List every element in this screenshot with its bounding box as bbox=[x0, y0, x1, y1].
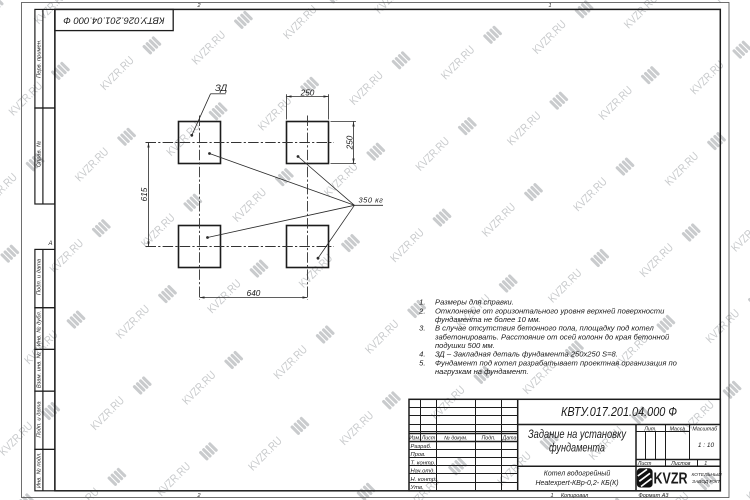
svg-text:KVZR.RU: KVZR.RU bbox=[638, 242, 676, 280]
svg-text:KVZR.RU: KVZR.RU bbox=[546, 267, 584, 305]
svg-text:KVZR.RU: KVZR.RU bbox=[531, 19, 569, 57]
svg-text:KVZR.RU: KVZR.RU bbox=[704, 308, 742, 346]
svg-text:KVZR.RU: KVZR.RU bbox=[73, 146, 111, 184]
svg-text:№ докум.: № докум. bbox=[444, 435, 467, 441]
svg-text:КОТЕЛЬНЫЙ: КОТЕЛЬНЫЙ bbox=[692, 470, 723, 478]
svg-text:Подп. и дата: Подп. и дата bbox=[36, 401, 42, 438]
svg-text:KVZR.RU: KVZR.RU bbox=[572, 176, 610, 214]
svg-text:615: 615 bbox=[140, 187, 149, 201]
svg-text:KVZR.RU: KVZR.RU bbox=[206, 278, 244, 316]
svg-text:KVZR.RU: KVZR.RU bbox=[124, 0, 162, 1]
svg-text:КВТУ.017.201.04.000 Ф: КВТУ.017.201.04.000 Ф bbox=[561, 405, 677, 419]
svg-text:Справ. №: Справ. № bbox=[36, 141, 42, 167]
svg-text:KVZR.RU: KVZR.RU bbox=[480, 201, 518, 239]
svg-text:1 : 10: 1 : 10 bbox=[698, 442, 715, 449]
svg-text:KVZR.RU: KVZR.RU bbox=[180, 369, 218, 407]
svg-text:Размеры для справки.: Размеры для справки. bbox=[435, 298, 514, 307]
svg-text:1: 1 bbox=[549, 3, 552, 9]
svg-text:1.: 1. bbox=[419, 298, 425, 307]
svg-text:KVZR.RU: KVZR.RU bbox=[348, 70, 386, 108]
svg-text:KVZR.RU: KVZR.RU bbox=[231, 186, 269, 224]
svg-text:KVZR.RU: KVZR.RU bbox=[363, 318, 401, 356]
svg-text:KVZR.RU: KVZR.RU bbox=[7, 80, 45, 118]
svg-text:KVZR.RU: KVZR.RU bbox=[322, 161, 360, 199]
svg-text:KVZR.RU: KVZR.RU bbox=[338, 410, 376, 448]
svg-text:KVZR.RU: KVZR.RU bbox=[139, 212, 177, 250]
svg-text:1: 1 bbox=[704, 461, 707, 467]
svg-text:Формат А3: Формат А3 bbox=[638, 493, 669, 499]
svg-text:Задание на установку: Задание на установку bbox=[528, 429, 627, 441]
svg-text:Инв. № подл.: Инв. № подл. bbox=[36, 452, 42, 488]
svg-text:KVZR.RU: KVZR.RU bbox=[48, 237, 86, 275]
svg-text:фундамента не более 10 мм.: фундамента не более 10 мм. bbox=[435, 315, 541, 324]
svg-text:Нач.отд.: Нач.отд. bbox=[411, 469, 435, 475]
svg-text:KVZR.RU: KVZR.RU bbox=[64, 486, 102, 500]
svg-text:Лист: Лист bbox=[637, 461, 652, 467]
svg-text:Н. контр.: Н. контр. bbox=[411, 477, 437, 483]
svg-text:Т. контр.: Т. контр. bbox=[411, 460, 436, 466]
svg-text:KVZR.RU: KVZR.RU bbox=[0, 420, 36, 458]
svg-text:Масштаб: Масштаб bbox=[692, 427, 718, 433]
svg-text:Heatexpert-КВр-0,2- КБ(К): Heatexpert-КВр-0,2- КБ(К) bbox=[535, 480, 618, 487]
svg-text:Изм.: Изм. bbox=[409, 435, 420, 441]
svg-text:Пров.: Пров. bbox=[411, 452, 426, 458]
svg-text:KVZR.RU: KVZR.RU bbox=[414, 135, 452, 173]
svg-text:KVZR.RU: KVZR.RU bbox=[190, 29, 228, 67]
svg-text:KVZR.RU: KVZR.RU bbox=[389, 227, 427, 265]
svg-text:250: 250 bbox=[300, 88, 315, 97]
svg-text:KVZR.RU: KVZR.RU bbox=[663, 150, 701, 188]
svg-text:KVZR.RU: KVZR.RU bbox=[272, 344, 310, 382]
svg-text:Дата: Дата bbox=[502, 435, 517, 441]
svg-text:В случае отсутствия бетонного: В случае отсутствия бетонного пола, площ… bbox=[435, 324, 655, 333]
svg-text:640: 640 bbox=[247, 289, 261, 298]
svg-text:KVZR.RU: KVZR.RU bbox=[165, 121, 203, 159]
svg-text:Листов: Листов bbox=[670, 461, 691, 467]
svg-text:ЗД – Закладная деталь фундамен: ЗД – Закладная деталь фундамента 250х250… bbox=[435, 350, 618, 359]
svg-text:Лит.: Лит. bbox=[643, 427, 656, 433]
svg-text:KVZR.RU: KVZR.RU bbox=[430, 384, 468, 422]
svg-text:Фундамент под котел разрабатыв: Фундамент под котел разрабатывает проект… bbox=[435, 358, 677, 367]
svg-text:KVZR: KVZR bbox=[654, 471, 688, 488]
svg-text:ЗД: ЗД bbox=[215, 83, 228, 94]
svg-text:KVZR.RU: KVZR.RU bbox=[114, 303, 152, 341]
svg-text:KVZR.RU: KVZR.RU bbox=[155, 461, 193, 499]
svg-text:Масса: Масса bbox=[670, 427, 686, 433]
svg-text:5.: 5. bbox=[419, 358, 425, 367]
svg-text:3.: 3. bbox=[419, 324, 425, 333]
svg-text:KVZR.RU: KVZR.RU bbox=[256, 95, 294, 133]
svg-text:Утв.: Утв. bbox=[410, 485, 424, 491]
svg-text:забетонировать. Расстояние от: забетонировать. Расстояние от осей колон… bbox=[434, 332, 670, 341]
svg-text:Подп.: Подп. bbox=[481, 435, 495, 441]
svg-text:Лист: Лист bbox=[421, 435, 436, 441]
svg-text:Перв. примен.: Перв. примен. bbox=[36, 39, 42, 78]
svg-text:Инв. № дубл.: Инв. № дубл. bbox=[36, 311, 42, 347]
svg-text:4.: 4. bbox=[419, 350, 425, 359]
svg-text:2: 2 bbox=[197, 3, 201, 9]
svg-text:А: А bbox=[48, 241, 53, 247]
svg-text:КВТУ.026.201.04.000 Ф: КВТУ.026.201.04.000 Ф bbox=[63, 14, 165, 25]
svg-text:KVZR.RU: KVZR.RU bbox=[89, 395, 127, 433]
svg-text:Копировал: Копировал bbox=[561, 493, 588, 499]
svg-text:2.: 2. bbox=[418, 306, 425, 315]
svg-text:KVZR.RU: KVZR.RU bbox=[0, 172, 20, 210]
svg-text:KVZR.RU: KVZR.RU bbox=[297, 252, 335, 290]
svg-text:фундамента: фундамента bbox=[549, 442, 605, 454]
svg-text:ЗАВОД РЭП: ЗАВОД РЭП bbox=[692, 479, 720, 485]
svg-text:KVZR.RU: KVZR.RU bbox=[247, 435, 285, 473]
svg-text:KVZR.RU: KVZR.RU bbox=[622, 0, 660, 31]
svg-text:1: 1 bbox=[550, 493, 553, 499]
svg-text:350 кг: 350 кг bbox=[359, 196, 384, 205]
svg-text:KVZR.RU: KVZR.RU bbox=[745, 465, 750, 500]
svg-text:KVZR.RU: KVZR.RU bbox=[505, 110, 543, 148]
svg-text:Котел водогрейный: Котел водогрейный bbox=[544, 470, 611, 478]
svg-text:KVZR.RU: KVZR.RU bbox=[439, 44, 477, 82]
svg-text:KVZR.RU: KVZR.RU bbox=[729, 216, 750, 254]
svg-text:250: 250 bbox=[345, 135, 354, 150]
svg-text:нагрузкам на фундамент.: нагрузкам на фундамент. bbox=[435, 367, 529, 376]
svg-text:Подп. и дата: Подп. и дата bbox=[36, 258, 42, 295]
svg-text:Разраб.: Разраб. bbox=[411, 444, 432, 450]
svg-text:Взам. инв. №: Взам. инв. № bbox=[36, 352, 42, 388]
svg-text:KVZR.RU: KVZR.RU bbox=[99, 55, 137, 93]
svg-text:KVZR.RU: KVZR.RU bbox=[597, 84, 635, 122]
svg-text:2: 2 bbox=[197, 493, 201, 499]
